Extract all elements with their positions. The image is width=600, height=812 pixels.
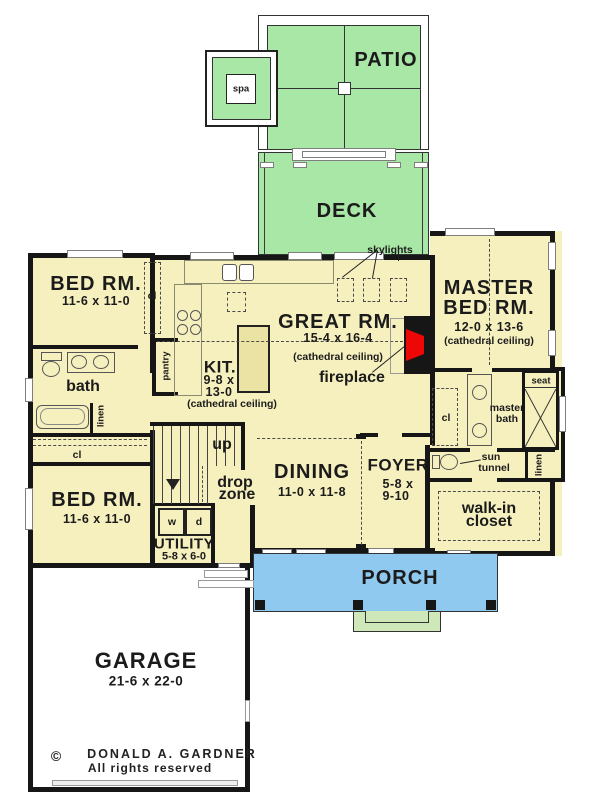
linen-label: linen <box>96 405 106 427</box>
room-note-master: (cathedral ceiling) <box>444 336 534 347</box>
wall <box>525 450 528 480</box>
window <box>548 242 556 270</box>
sink <box>71 355 87 369</box>
room-dims-foyer-2: 9-10 <box>382 490 409 503</box>
wall <box>430 448 470 452</box>
window <box>25 378 33 402</box>
room-dims-bed1: 11-6 x 11-0 <box>62 295 130 308</box>
closet-rod <box>33 445 147 446</box>
kitchen-sink <box>239 264 254 281</box>
toilet-tank <box>432 455 440 469</box>
garage-door <box>52 780 238 786</box>
room-dims-master: 12-0 x 13-6 <box>454 321 523 334</box>
porch-column <box>486 600 496 610</box>
copyright-symbol: © <box>51 749 63 763</box>
room-label-foyer: FOYER <box>367 457 428 474</box>
kitchen-sink <box>222 264 237 281</box>
wall <box>28 345 138 349</box>
stairs-lower <box>153 466 213 504</box>
garage-side-door <box>245 700 250 722</box>
deck-label: DECK <box>317 201 378 221</box>
sink <box>472 385 487 400</box>
kitchen-counter-left <box>174 284 202 396</box>
room-note-great: (cathedral ceiling) <box>293 352 383 363</box>
fireplace-label: fireplace <box>319 370 385 386</box>
kitchen-island <box>237 325 270 393</box>
room-divider <box>361 441 362 545</box>
stove-burner <box>190 310 201 321</box>
window <box>25 488 33 530</box>
room-dims-garage: 21-6 x 22-0 <box>109 674 184 688</box>
washer-label: w <box>168 517 176 528</box>
room-label-bed2: BED RM. <box>51 490 142 510</box>
patio-drain <box>338 82 351 95</box>
utility-garage-door <box>218 563 240 568</box>
wall <box>241 422 245 470</box>
wall <box>550 478 555 556</box>
window <box>548 330 556 356</box>
room-note-kitchen: (cathedral ceiling) <box>187 399 277 410</box>
sun-tunnel-label-2: tunnel <box>478 463 510 474</box>
porch-column <box>353 600 363 610</box>
porch-label: PORCH <box>361 568 438 588</box>
bathtub-inner <box>40 408 85 425</box>
stairs-arrow <box>166 479 180 490</box>
wall <box>430 478 472 482</box>
masterbath-label-1: master <box>490 403 524 414</box>
masterbath-label-2: bath <box>496 414 518 425</box>
toilet-bowl <box>440 454 458 470</box>
dryer-label: d <box>196 517 202 528</box>
room-label-master-1: MASTER <box>444 278 534 298</box>
toilet-bowl <box>42 361 60 377</box>
room-label-dining: DINING <box>274 462 350 482</box>
bath-label: bath <box>66 379 100 395</box>
closet-label: cl <box>73 450 82 461</box>
room-label-great: GREAT RM. <box>278 312 398 332</box>
closet-label: cl <box>442 413 451 424</box>
patio-deck-step-inner <box>302 151 386 158</box>
deck-post <box>293 162 307 168</box>
seat-label: seat <box>531 376 550 386</box>
stove-burner <box>177 310 188 321</box>
skylight <box>363 278 380 302</box>
skylight <box>390 278 407 302</box>
stairs-up-label: up <box>212 437 232 453</box>
kitchen-prep-island <box>227 292 246 312</box>
pantry-label: pantry <box>161 351 171 380</box>
deck-post <box>387 162 401 168</box>
stove-burner <box>190 324 201 335</box>
room-label-garage: GARAGE <box>95 650 198 672</box>
garage-entry-step <box>198 580 254 588</box>
window <box>288 252 322 260</box>
sun-tunnel-label-1: sun <box>482 452 501 463</box>
garage-entry-step <box>204 570 248 578</box>
skylights-label: skylights <box>367 245 413 256</box>
sink <box>472 423 487 438</box>
closet-rod <box>33 439 147 440</box>
window <box>559 396 566 432</box>
skylight <box>337 278 354 302</box>
room-dims-dining: 11-0 x 11-8 <box>278 486 346 499</box>
wall <box>402 433 430 437</box>
linen-label: linen <box>534 454 544 476</box>
room-dims-great: 15-4 x 16-4 <box>303 332 372 345</box>
porch-steps-inner <box>365 611 429 623</box>
room-label-master-2: BED RM. <box>443 298 534 318</box>
room-dims-bed2: 11-6 x 11-0 <box>63 513 131 526</box>
deck-post <box>260 162 274 168</box>
wall <box>152 338 156 396</box>
room-label-utility: UTILITY <box>154 537 214 552</box>
window <box>190 252 234 260</box>
toilet-tank <box>41 352 62 361</box>
skylight-leader <box>398 250 399 261</box>
closet-label: cl <box>148 291 157 302</box>
window <box>67 250 123 258</box>
floor-plan: PATIO spa DECK <box>0 0 600 812</box>
porch-column <box>426 600 436 610</box>
wall <box>90 403 93 433</box>
drop-zone-label-2: zone <box>219 487 255 503</box>
shower-x <box>525 389 556 447</box>
wall <box>28 433 155 437</box>
wall <box>28 462 155 466</box>
kitchen-counter-top <box>184 260 334 284</box>
deck-post <box>414 162 428 168</box>
wall <box>430 368 472 372</box>
wall <box>356 434 366 439</box>
spa-label: spa <box>233 84 249 94</box>
wall <box>28 787 250 792</box>
room-label-bed1: BED RM. <box>50 274 141 294</box>
patio-label: PATIO <box>354 50 417 70</box>
room-dims-utility: 5-8 x 6-0 <box>162 552 206 563</box>
ceiling-line <box>257 438 357 439</box>
stove-burner <box>177 324 188 335</box>
porch-column <box>255 600 265 610</box>
rights-text: All rights reserved <box>88 762 212 774</box>
designer-credit: DONALD A. GARDNER <box>87 748 257 761</box>
room-dims-kitchen-2: 13-0 <box>205 386 232 399</box>
stairs-rail <box>202 466 203 502</box>
window <box>445 228 495 236</box>
walkin-label-2: closet <box>466 514 512 530</box>
sink <box>93 355 109 369</box>
